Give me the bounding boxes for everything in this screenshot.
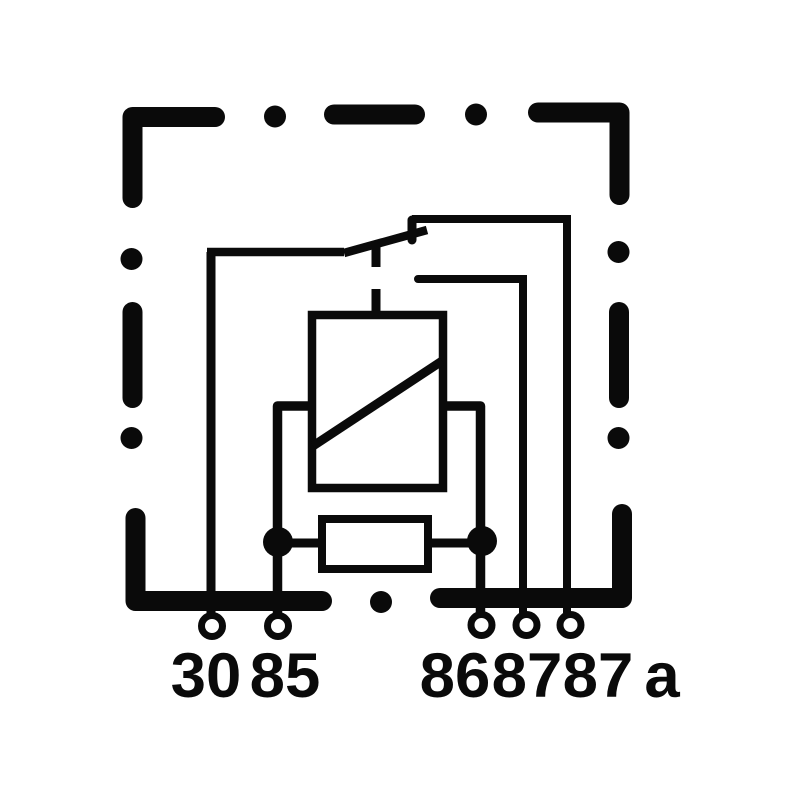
svg-text:a: a	[644, 641, 680, 711]
svg-text:86: 86	[420, 641, 491, 711]
svg-text:30: 30	[171, 641, 242, 711]
svg-text:87: 87	[492, 641, 563, 711]
svg-text:87: 87	[563, 641, 634, 711]
svg-text:85: 85	[250, 641, 321, 711]
